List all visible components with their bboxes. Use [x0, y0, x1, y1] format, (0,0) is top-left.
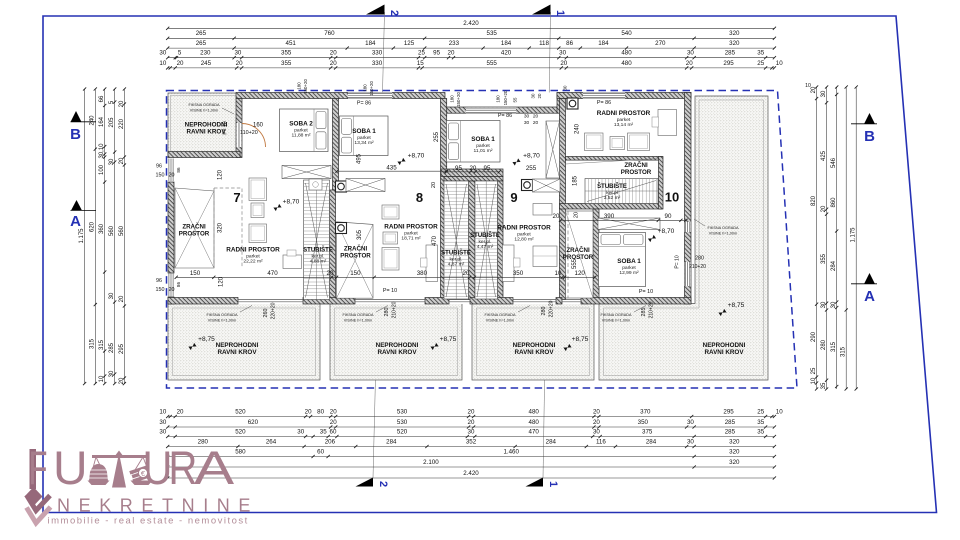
svg-text:RADNI PROSTOR: RADNI PROSTOR — [226, 247, 280, 254]
svg-text:VISINE h=1,00m: VISINE h=1,00m — [709, 231, 737, 235]
svg-text:20: 20 — [236, 60, 243, 67]
svg-text:520: 520 — [235, 408, 246, 415]
svg-text:100: 100 — [99, 164, 105, 175]
svg-text:10: 10 — [159, 408, 166, 415]
svg-text:VISINE h=1,00m: VISINE h=1,00m — [208, 318, 236, 322]
svg-text:20: 20 — [593, 408, 600, 415]
svg-text:1.460: 1.460 — [503, 448, 519, 455]
svg-text:10: 10 — [776, 408, 783, 415]
svg-text:480: 480 — [621, 50, 632, 57]
svg-text:520: 520 — [235, 428, 246, 435]
svg-text:205: 205 — [109, 117, 115, 128]
svg-text:350: 350 — [513, 270, 524, 277]
svg-text:5: 5 — [178, 50, 182, 57]
svg-text:RAVNI KROV: RAVNI KROV — [704, 349, 744, 356]
svg-text:245: 245 — [201, 60, 212, 67]
svg-text:30: 30 — [687, 419, 694, 426]
svg-text:FIKSNA OGRADA: FIKSNA OGRADA — [342, 313, 373, 317]
svg-text:315: 315 — [831, 341, 837, 352]
svg-text:4,47 m²: 4,47 m² — [477, 244, 494, 250]
svg-text:30: 30 — [297, 428, 304, 435]
svg-text:4,87 m²: 4,87 m² — [448, 261, 465, 267]
svg-text:330: 330 — [372, 60, 383, 67]
svg-text:220: 220 — [119, 118, 125, 129]
svg-text:B: B — [864, 128, 875, 145]
svg-text:+8,75: +8,75 — [572, 336, 589, 343]
svg-text:10: 10 — [811, 377, 817, 384]
svg-text:295: 295 — [723, 408, 734, 415]
svg-text:PROSTOR: PROSTOR — [179, 231, 210, 238]
svg-text:125: 125 — [404, 40, 415, 47]
svg-text:210+20: 210+20 — [689, 264, 706, 270]
svg-text:150: 150 — [156, 287, 165, 293]
svg-text:535: 535 — [487, 30, 498, 37]
svg-text:820: 820 — [811, 195, 817, 206]
svg-text:210+20: 210+20 — [649, 301, 655, 318]
svg-text:150+20: 150+20 — [456, 92, 461, 107]
svg-text:390: 390 — [604, 213, 615, 220]
svg-text:P= 86: P= 86 — [357, 101, 371, 107]
svg-text:350: 350 — [638, 419, 649, 426]
svg-text:180: 180 — [496, 95, 501, 103]
svg-text:20: 20 — [169, 287, 175, 293]
svg-text:95: 95 — [433, 50, 440, 57]
svg-text:285: 285 — [109, 342, 115, 353]
svg-text:520: 520 — [397, 428, 408, 435]
svg-text:10: 10 — [99, 375, 105, 382]
svg-text:80: 80 — [317, 408, 324, 415]
svg-text:560: 560 — [119, 225, 125, 236]
svg-text:P= 86: P= 86 — [498, 113, 512, 119]
svg-text:555: 555 — [487, 60, 498, 67]
svg-text:20: 20 — [177, 408, 184, 415]
svg-text:30: 30 — [687, 50, 694, 57]
svg-text:U: U — [53, 442, 88, 494]
svg-text:25: 25 — [418, 50, 425, 57]
svg-text:30,10: 30,10 — [99, 143, 105, 159]
svg-text:PROSTOR: PROSTOR — [340, 253, 371, 260]
svg-text:+8,70: +8,70 — [408, 153, 425, 160]
svg-text:FIKSNA OGRADA: FIKSNA OGRADA — [707, 226, 738, 230]
svg-text:13,14 m²: 13,14 m² — [614, 122, 634, 128]
svg-text:620: 620 — [248, 419, 259, 426]
svg-text:120: 120 — [218, 169, 224, 180]
svg-text:RADNI PROSTOR: RADNI PROSTOR — [497, 225, 551, 232]
svg-text:30: 30 — [821, 90, 827, 97]
svg-text:230: 230 — [200, 50, 211, 57]
svg-text:320: 320 — [218, 222, 224, 233]
svg-text:+8,70: +8,70 — [523, 152, 540, 159]
svg-text:30: 30 — [524, 114, 530, 120]
svg-text:284: 284 — [546, 438, 557, 445]
svg-text:451: 451 — [286, 40, 297, 47]
svg-text:NEKRETNINE: NEKRETNINE — [57, 496, 259, 516]
svg-text:280: 280 — [695, 256, 704, 262]
svg-text:20: 20 — [330, 408, 337, 415]
svg-text:35: 35 — [757, 50, 764, 57]
svg-text:285: 285 — [641, 308, 647, 317]
svg-text:35: 35 — [821, 382, 827, 389]
svg-text:495: 495 — [357, 153, 363, 164]
svg-text:320: 320 — [729, 459, 740, 466]
svg-text:530: 530 — [397, 419, 408, 426]
svg-text:SOBA 2: SOBA 2 — [289, 121, 313, 128]
svg-text:265: 265 — [196, 30, 207, 37]
svg-text:295: 295 — [723, 60, 734, 67]
svg-text:470: 470 — [267, 270, 278, 277]
svg-text:+8,75: +8,75 — [198, 336, 215, 343]
svg-text:380: 380 — [417, 270, 428, 277]
svg-text:35: 35 — [757, 419, 764, 426]
svg-text:20: 20 — [463, 270, 470, 277]
svg-text:P= 10: P= 10 — [383, 288, 397, 294]
svg-text:12,80 m²: 12,80 m² — [514, 236, 534, 242]
svg-text:95: 95 — [455, 165, 462, 172]
svg-text:immobilie - real estate - nemo: immobilie - real estate - nemovitost — [48, 516, 249, 527]
svg-text:470: 470 — [432, 235, 438, 246]
svg-text:284: 284 — [386, 438, 397, 445]
svg-text:11,88 m²: 11,88 m² — [292, 132, 311, 138]
svg-text:330: 330 — [372, 50, 383, 57]
svg-text:30: 30 — [524, 120, 530, 126]
svg-text:35: 35 — [320, 428, 327, 435]
svg-text:150+20: 150+20 — [503, 90, 508, 105]
svg-text:FIKSNA OGRADA: FIKSNA OGRADA — [600, 313, 631, 317]
svg-text:ZRAČNI: ZRAČNI — [182, 224, 206, 231]
svg-text:30: 30 — [159, 419, 166, 426]
svg-text:95: 95 — [484, 165, 491, 172]
svg-text:360: 360 — [99, 223, 105, 234]
svg-text:STUBIŠTE: STUBIŠTE — [303, 246, 333, 254]
svg-text:1.175: 1.175 — [79, 228, 85, 244]
svg-text:FIKSNA OGRADA: FIKSNA OGRADA — [206, 313, 237, 317]
svg-text:STUBIŠTE: STUBIŠTE — [470, 231, 500, 239]
svg-text:184: 184 — [365, 40, 376, 47]
svg-text:12,99 m²: 12,99 m² — [619, 270, 639, 276]
svg-text:20: 20 — [119, 295, 125, 302]
svg-text:22,22 m²: 22,22 m² — [243, 258, 263, 264]
svg-text:4,88 m²: 4,88 m² — [310, 258, 327, 264]
svg-text:30: 30 — [468, 428, 475, 435]
svg-text:NEPROHODNI: NEPROHODNI — [185, 122, 228, 129]
svg-text:560: 560 — [109, 225, 115, 236]
svg-text:580: 580 — [235, 448, 246, 455]
svg-text:30: 30 — [159, 50, 166, 57]
svg-text:1: 1 — [554, 10, 566, 16]
svg-text:760: 760 — [324, 30, 335, 37]
svg-text:150: 150 — [350, 270, 361, 277]
svg-text:540: 540 — [621, 30, 632, 37]
svg-text:20: 20 — [553, 213, 560, 220]
svg-text:30: 30 — [593, 428, 600, 435]
svg-text:20: 20 — [686, 60, 693, 67]
svg-text:320: 320 — [729, 30, 740, 37]
svg-text:86: 86 — [176, 282, 181, 288]
svg-text:30: 30 — [109, 292, 115, 299]
svg-text:RADNI PROSTOR: RADNI PROSTOR — [597, 110, 651, 117]
svg-text:284: 284 — [646, 438, 657, 445]
svg-text:20: 20 — [533, 114, 539, 120]
svg-text:620: 620 — [90, 221, 96, 232]
svg-text:RADNI PROSTOR: RADNI PROSTOR — [384, 224, 438, 231]
svg-text:20: 20 — [811, 86, 817, 93]
svg-text:10: 10 — [159, 60, 166, 67]
svg-text:86: 86 — [566, 40, 573, 47]
svg-text:3,52 m²: 3,52 m² — [604, 195, 621, 201]
svg-text:1: 1 — [547, 481, 559, 487]
svg-text:20: 20 — [305, 408, 312, 415]
svg-text:20: 20 — [560, 60, 567, 67]
svg-text:546: 546 — [831, 157, 837, 168]
svg-text:96: 96 — [156, 164, 162, 170]
svg-text:10: 10 — [805, 83, 811, 89]
svg-text:30: 30 — [109, 370, 115, 377]
svg-text:P= 10: P= 10 — [675, 255, 681, 268]
svg-text:355: 355 — [281, 50, 292, 57]
svg-text:RAVNI KROV: RAVNI KROV — [217, 349, 257, 356]
svg-text:184: 184 — [501, 40, 512, 47]
svg-text:150+20: 150+20 — [369, 81, 374, 96]
svg-text:160: 160 — [253, 123, 264, 129]
svg-text:F: F — [29, 443, 48, 495]
svg-text:264: 264 — [266, 438, 277, 445]
svg-text:116: 116 — [596, 438, 606, 445]
svg-text:120: 120 — [575, 270, 586, 277]
svg-text:30: 30 — [687, 438, 694, 445]
svg-text:9: 9 — [510, 190, 517, 205]
svg-text:10: 10 — [665, 190, 679, 205]
svg-text:20: 20 — [119, 100, 125, 107]
svg-text:315: 315 — [90, 338, 96, 349]
svg-text:PROSTOR: PROSTOR — [563, 254, 594, 261]
svg-text:480: 480 — [621, 60, 632, 67]
svg-text:30: 30 — [531, 93, 536, 98]
svg-text:210+20: 210+20 — [392, 301, 398, 318]
svg-text:180: 180 — [450, 95, 455, 103]
svg-text:SOBA 1: SOBA 1 — [471, 136, 495, 143]
svg-text:20: 20 — [330, 50, 337, 57]
svg-text:PROSTOR: PROSTOR — [621, 169, 652, 176]
svg-text:185: 185 — [573, 175, 579, 186]
svg-text:290: 290 — [811, 331, 817, 342]
svg-text:20: 20 — [468, 408, 475, 415]
svg-text:355: 355 — [281, 60, 292, 67]
svg-text:164: 164 — [99, 116, 105, 127]
svg-text:20: 20 — [537, 93, 542, 98]
svg-text:118: 118 — [539, 40, 549, 47]
svg-text:20: 20 — [119, 157, 125, 164]
svg-text:180: 180 — [363, 84, 368, 92]
svg-text:370: 370 — [640, 408, 651, 415]
svg-text:RAVNI KROV: RAVNI KROV — [186, 129, 226, 136]
svg-text:860: 860 — [831, 197, 837, 208]
svg-text:25: 25 — [757, 60, 764, 67]
svg-text:280: 280 — [384, 308, 390, 317]
svg-text:280: 280 — [821, 339, 827, 350]
svg-text:25: 25 — [757, 408, 764, 415]
svg-text:530: 530 — [397, 408, 408, 415]
svg-text:1.175: 1.175 — [851, 227, 857, 243]
svg-text:10: 10 — [555, 270, 562, 277]
svg-text:375: 375 — [642, 428, 653, 435]
svg-text:+8,75: +8,75 — [728, 302, 745, 309]
svg-text:B: B — [70, 126, 81, 143]
svg-text:220+20: 220+20 — [549, 300, 555, 317]
svg-text:355: 355 — [821, 253, 827, 264]
svg-text:220+20: 220+20 — [271, 302, 277, 319]
svg-text:96: 96 — [156, 278, 162, 284]
svg-text:35: 35 — [757, 428, 764, 435]
svg-text:420: 420 — [501, 50, 512, 57]
svg-text:184: 184 — [598, 40, 609, 47]
svg-text:VISINE h=1,00m: VISINE h=1,00m — [344, 318, 372, 322]
svg-text:SOBA 1: SOBA 1 — [352, 128, 376, 135]
svg-text:20: 20 — [177, 60, 184, 67]
svg-text:352: 352 — [466, 438, 477, 445]
svg-text:180: 180 — [297, 82, 302, 90]
svg-text:P= 86: P= 86 — [597, 100, 611, 106]
svg-text:+8,75: +8,75 — [440, 336, 457, 343]
svg-text:ZRAČNI: ZRAČNI — [344, 246, 368, 253]
svg-text:30: 30 — [109, 158, 115, 165]
svg-text:315: 315 — [99, 339, 105, 350]
svg-text:P= 10: P= 10 — [223, 121, 229, 134]
svg-text:NEPROHODNI: NEPROHODNI — [216, 342, 259, 349]
svg-text:295: 295 — [119, 343, 125, 354]
svg-text:ZRAČNI: ZRAČNI — [566, 247, 590, 254]
svg-text:480: 480 — [529, 408, 540, 415]
svg-text:20: 20 — [327, 270, 334, 277]
svg-text:25: 25 — [811, 367, 817, 374]
svg-text:260: 260 — [263, 309, 269, 318]
svg-text:ŠTUBIŠTE: ŠTUBIŠTE — [597, 182, 627, 190]
svg-text:20: 20 — [330, 419, 337, 426]
svg-text:60: 60 — [317, 448, 324, 455]
svg-text:60: 60 — [330, 428, 337, 435]
svg-text:VISINE h=1,00m: VISINE h=1,00m — [190, 108, 218, 112]
svg-text:NEPROHODNI: NEPROHODNI — [513, 342, 556, 349]
svg-text:20: 20 — [593, 419, 600, 426]
svg-text:270: 270 — [655, 40, 666, 47]
svg-text:20: 20 — [574, 212, 580, 218]
svg-text:2: 2 — [377, 481, 389, 487]
svg-text:425: 425 — [821, 150, 827, 161]
svg-text:RAVNI KROV: RAVNI KROV — [514, 349, 554, 356]
svg-text:FIKSNA OGRADA: FIKSNA OGRADA — [188, 103, 219, 107]
svg-text:10: 10 — [776, 60, 783, 67]
svg-text:20: 20 — [448, 50, 455, 57]
svg-text:55: 55 — [513, 97, 518, 102]
svg-text:30: 30 — [559, 50, 566, 57]
svg-text:7: 7 — [233, 190, 240, 205]
svg-text:20: 20 — [431, 182, 437, 188]
svg-text:285: 285 — [725, 419, 736, 426]
svg-text:86: 86 — [176, 167, 181, 173]
svg-text:30: 30 — [563, 85, 568, 90]
svg-text:150+20: 150+20 — [303, 79, 308, 94]
svg-text:8: 8 — [416, 190, 423, 205]
svg-text:555: 555 — [572, 258, 578, 269]
svg-text:2.420: 2.420 — [463, 470, 479, 477]
svg-text:20: 20 — [330, 60, 337, 67]
svg-text:+8,70: +8,70 — [658, 228, 675, 235]
svg-text:30: 30 — [821, 301, 827, 308]
svg-text:FIKSNA OGRADA: FIKSNA OGRADA — [484, 313, 515, 317]
svg-text:66: 66 — [99, 95, 105, 102]
svg-text:285: 285 — [725, 50, 736, 57]
svg-text:A: A — [70, 213, 81, 230]
svg-text:STUBIŠTE: STUBIŠTE — [441, 249, 471, 257]
svg-text:A: A — [194, 442, 234, 494]
svg-text:233: 233 — [449, 40, 460, 47]
svg-text:20: 20 — [469, 165, 476, 172]
svg-text:320: 320 — [729, 448, 740, 455]
svg-text:15: 15 — [417, 60, 424, 67]
svg-text:VISINE h=1,00m: VISINE h=1,00m — [486, 318, 514, 322]
svg-text:SOBA 1: SOBA 1 — [617, 258, 641, 265]
svg-text:20: 20 — [533, 120, 539, 126]
svg-text:120: 120 — [219, 276, 225, 287]
svg-text:284: 284 — [831, 260, 837, 271]
svg-text:240: 240 — [575, 123, 581, 134]
svg-text:2.100: 2.100 — [423, 459, 439, 466]
svg-text:320: 320 — [729, 40, 740, 47]
svg-text:305: 305 — [357, 229, 363, 240]
svg-text:20: 20 — [821, 205, 827, 212]
svg-text:30: 30 — [831, 301, 837, 308]
svg-text:20: 20 — [468, 419, 475, 426]
svg-text:285: 285 — [725, 428, 736, 435]
svg-text:150: 150 — [190, 270, 201, 277]
svg-text:30: 30 — [234, 50, 241, 57]
svg-text:P= 10: P= 10 — [639, 289, 653, 295]
svg-text:NEPROHODNI: NEPROHODNI — [376, 342, 419, 349]
svg-text:255: 255 — [526, 165, 537, 172]
svg-text:2: 2 — [388, 10, 400, 16]
svg-text:+8,70: +8,70 — [283, 199, 300, 206]
svg-text:11,01 m²: 11,01 m² — [474, 148, 493, 154]
svg-text:20: 20 — [169, 173, 175, 179]
svg-text:280: 280 — [541, 307, 547, 316]
svg-text:VISINE h=1,00m: VISINE h=1,00m — [602, 318, 630, 322]
svg-text:ZRAČNI: ZRAČNI — [624, 162, 648, 169]
svg-text:150: 150 — [156, 173, 165, 179]
svg-text:480: 480 — [529, 419, 540, 426]
svg-text:435: 435 — [386, 165, 397, 172]
svg-text:A: A — [864, 288, 875, 305]
svg-text:90: 90 — [665, 213, 672, 220]
svg-text:30: 30 — [159, 428, 166, 435]
svg-text:240: 240 — [90, 115, 96, 126]
svg-text:RAVNI KROV: RAVNI KROV — [377, 349, 417, 356]
svg-text:110+20: 110+20 — [240, 130, 258, 136]
svg-text:13,34 m²: 13,34 m² — [354, 140, 374, 146]
svg-text:2.420: 2.420 — [463, 20, 479, 27]
svg-text:206: 206 — [325, 438, 336, 445]
svg-text:255: 255 — [434, 131, 440, 142]
svg-text:265: 265 — [196, 40, 207, 47]
svg-text:NEPROHODNI: NEPROHODNI — [703, 342, 746, 349]
svg-text:470: 470 — [529, 428, 540, 435]
svg-text:18,71 m²: 18,71 m² — [401, 235, 421, 241]
svg-text:315: 315 — [841, 346, 847, 357]
svg-text:320: 320 — [729, 438, 740, 445]
svg-text:20: 20 — [119, 377, 125, 384]
